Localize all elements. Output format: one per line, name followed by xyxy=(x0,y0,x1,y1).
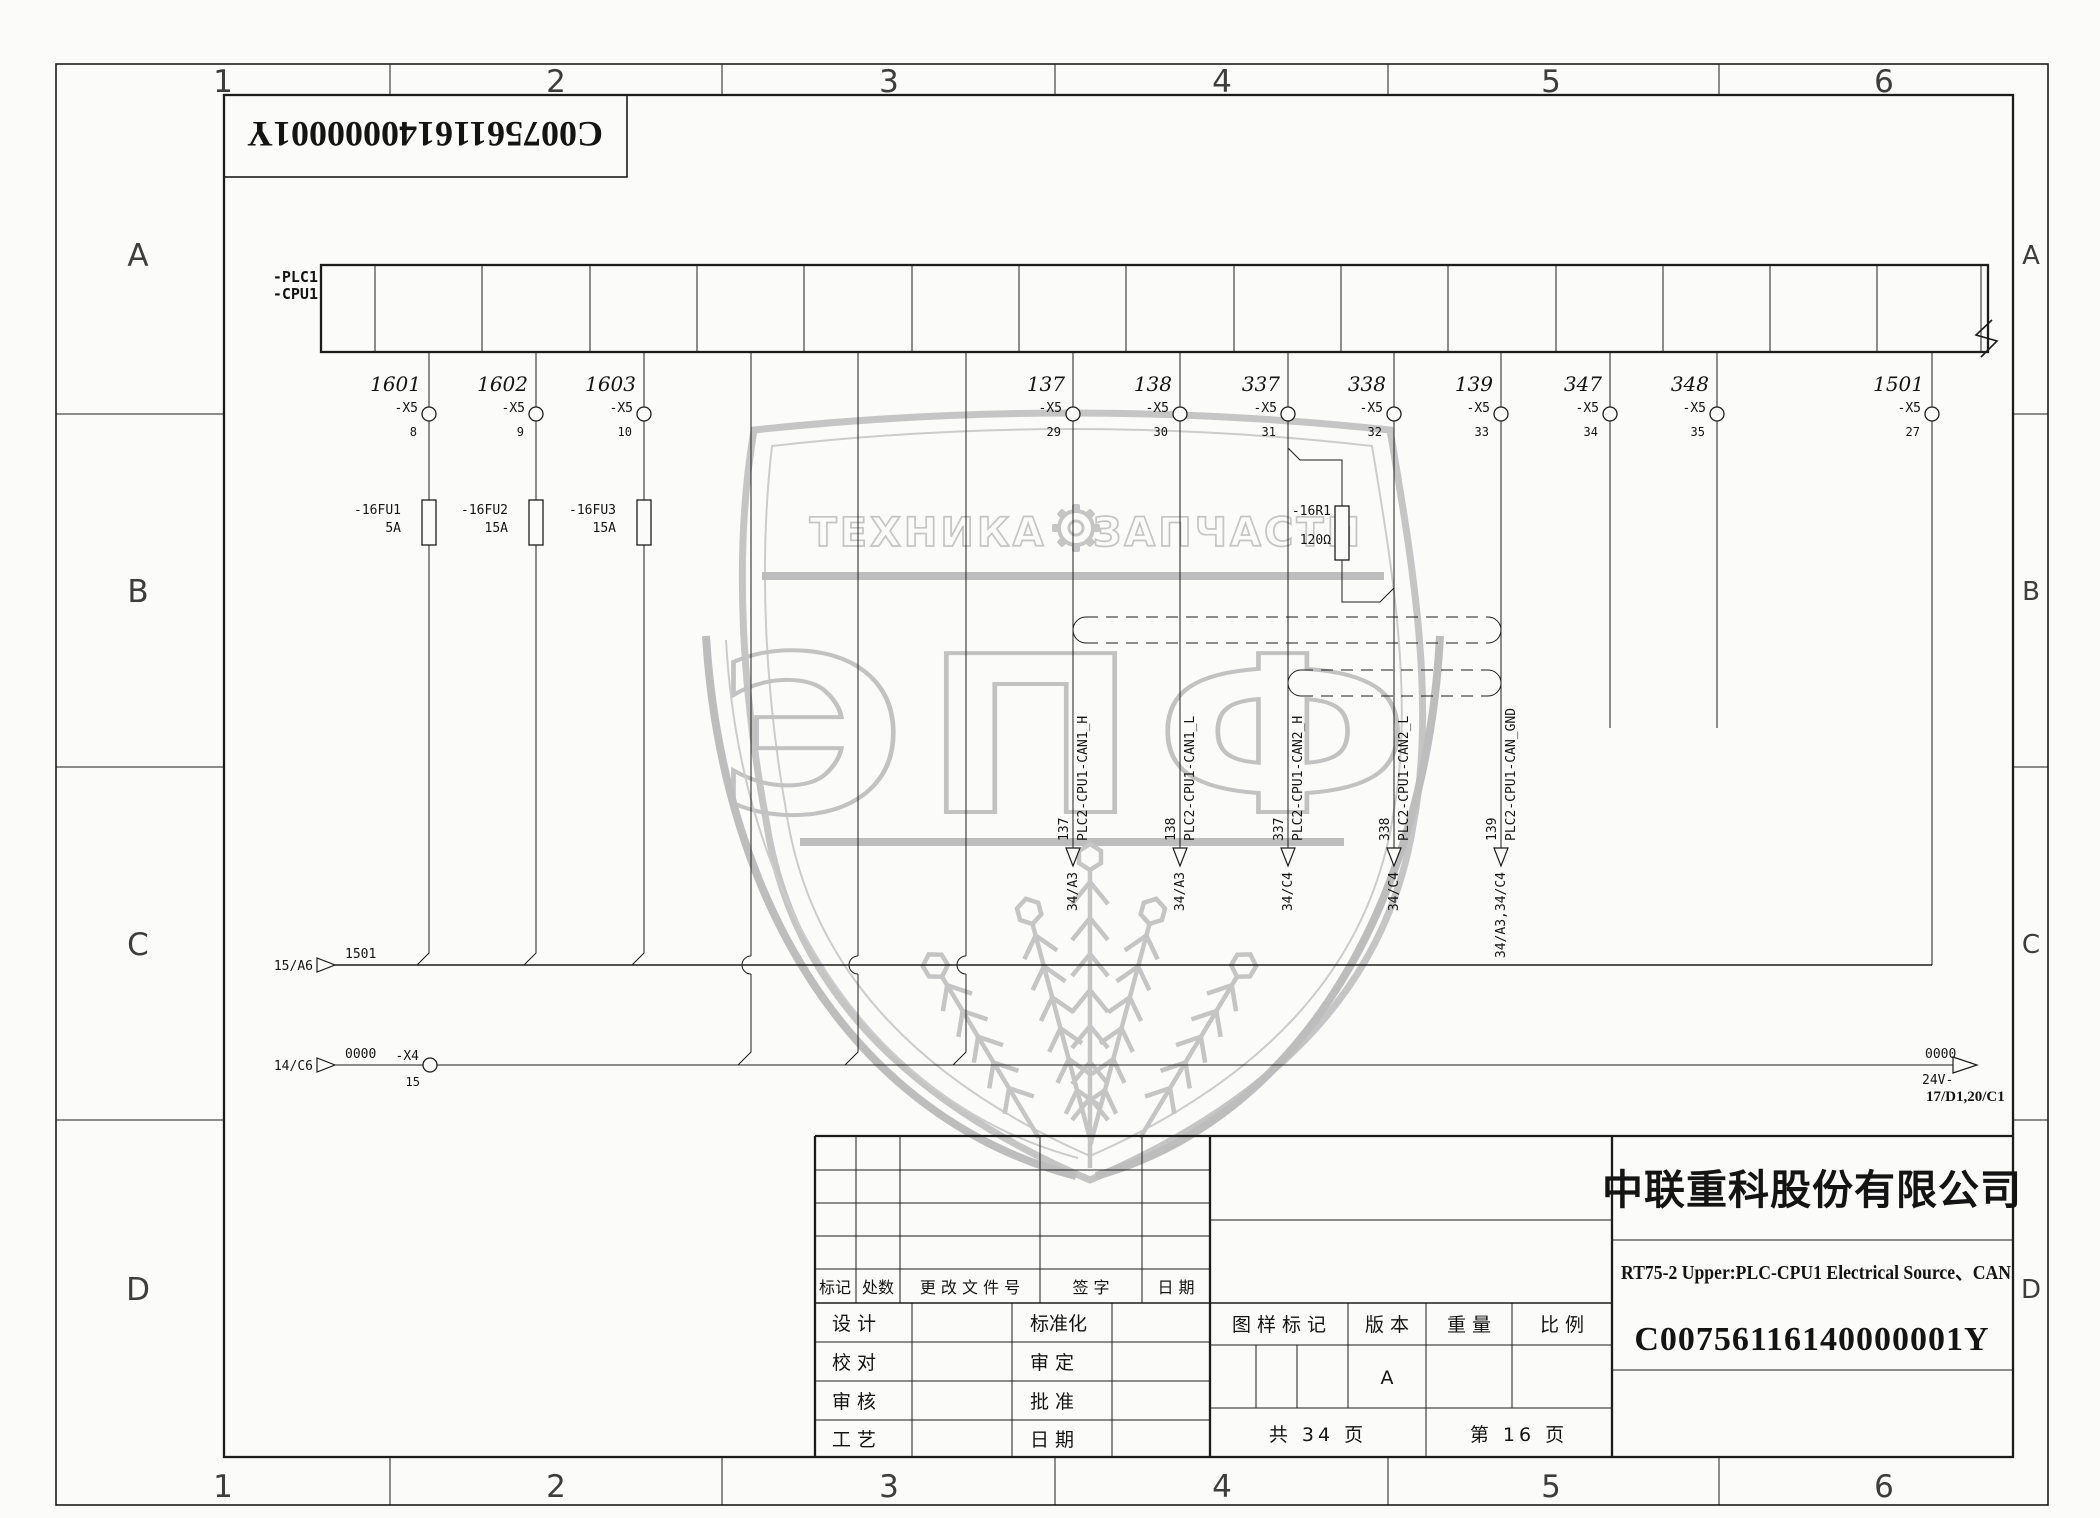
fuse-rating: 15A xyxy=(485,521,509,536)
rev-header: 处数 xyxy=(862,1278,894,1297)
sig-label: 审 核 xyxy=(832,1391,876,1413)
wire-number-vertical: 338 xyxy=(1378,818,1393,841)
row-label: A xyxy=(127,238,148,274)
revision-header-row: 标记 处数 更 改 文 件 号 签 字 日 期 xyxy=(819,1278,1195,1297)
wire-number: 137 xyxy=(1027,372,1065,396)
source-arrow-icon xyxy=(317,958,335,972)
fuse-rating: 5A xyxy=(385,521,401,536)
connector-ref: -X5 xyxy=(1683,401,1706,416)
row-label: C xyxy=(127,927,149,963)
col-label: 2 xyxy=(546,1469,566,1505)
stamp-scale-label: 比 例 xyxy=(1540,1314,1584,1336)
rev-header: 更 改 文 件 号 xyxy=(920,1278,1020,1297)
arrow-down-icon xyxy=(1494,848,1508,866)
connector-ref: -X5 xyxy=(1576,401,1599,416)
signature-labels: 设 计 校 对 审 核 工 艺 标准化 审 定 批 准 日 期 xyxy=(832,1313,1087,1451)
plc-block: -PLC1 -CPU1 xyxy=(273,265,1997,357)
pin-number: 32 xyxy=(1368,425,1382,439)
stamp-version-value: A xyxy=(1381,1367,1394,1389)
pages-total: 共 34 页 xyxy=(1269,1424,1367,1446)
wire-number: 337 xyxy=(1242,372,1280,396)
row-label: D xyxy=(2021,1275,2041,1305)
terminal-348: 348 -X5 35 xyxy=(1671,352,1724,728)
pin-number: 30 xyxy=(1154,425,1168,439)
rev-header: 标记 xyxy=(819,1278,851,1297)
cross-reference: 34/A3,34/C4 xyxy=(1494,872,1509,958)
bus-0000: 14/C6 0000 -X4 15 0000 24V- 17/D1,20/C1 xyxy=(274,1047,2005,1105)
bus-wire-number: 0000 xyxy=(1925,1047,1956,1062)
cross-reference: 17/D1,20/C1 xyxy=(1926,1089,2005,1105)
fuse-rating: 15A xyxy=(593,521,617,536)
fuse-name: -16FU3 xyxy=(569,503,616,518)
company-name: 中联重科股份有限公司 xyxy=(1602,1166,2022,1214)
drawing-number: C00756116140000001Y xyxy=(1634,1321,1989,1358)
sig-label: 批 准 xyxy=(1030,1391,1074,1413)
fuse-16FU2: -16FU2 15A xyxy=(461,500,543,545)
signal-name: PLC2-CPU1-CAN2_L xyxy=(1397,716,1412,841)
connector-ref: -X5 xyxy=(1467,401,1490,416)
sig-label: 审 定 xyxy=(1030,1352,1074,1374)
wire-number: 1501 xyxy=(1873,372,1924,396)
fuse-16FU3: -16FU3 15A xyxy=(569,500,651,545)
col-label: 5 xyxy=(1541,64,1561,100)
wire-number: 338 xyxy=(1348,372,1386,396)
terminal-x4-pin: 15 xyxy=(406,1075,420,1089)
source-reference: 15/A6 xyxy=(274,959,313,974)
col-label: 5 xyxy=(1541,1469,1561,1505)
pin-number: 29 xyxy=(1047,425,1061,439)
pin-number: 31 xyxy=(1262,425,1276,439)
row-label: A xyxy=(2022,241,2040,271)
signal-name: PLC2-CPU1-CAN1_L xyxy=(1183,716,1198,841)
doc-number-box: C00756116140000001Y xyxy=(224,95,627,177)
pin-number: 33 xyxy=(1475,425,1489,439)
gear-icon xyxy=(1052,504,1100,552)
title-block: 标记 处数 更 改 文 件 号 签 字 日 期 设 计 校 对 审 核 工 艺 … xyxy=(815,1136,2022,1457)
row-label: C xyxy=(2022,930,2040,960)
sig-label: 标准化 xyxy=(1030,1313,1087,1335)
grid-column-labels-bottom: 1 2 3 4 5 6 xyxy=(213,1469,1894,1505)
pin-number: 35 xyxy=(1691,425,1705,439)
schematic-canvas: ТЕХНИКА ЗАПЧАСТИ ЭПФ xyxy=(0,0,2100,1518)
terminal-1501: 1501 -X5 27 xyxy=(1873,352,1939,965)
connector-ref: -X5 xyxy=(1039,401,1062,416)
col-label: 1 xyxy=(213,1469,233,1505)
terminal-1601: 1601 -X5 8 xyxy=(370,352,436,965)
signal-name: PLC2-CPU1-CAN_GND xyxy=(1504,708,1519,841)
signal-name: PLC2-CPU1-CAN2_H xyxy=(1291,716,1306,841)
stamp-headers: 图 样 标 记 版 本 重 量 比 例 A xyxy=(1232,1314,1584,1389)
sig-label: 工 艺 xyxy=(832,1429,876,1451)
pages-current: 第 16 页 xyxy=(1470,1424,1568,1446)
cross-reference: 34/A3 xyxy=(1066,872,1081,911)
pin-number: 27 xyxy=(1906,425,1920,439)
bus-wire-number: 1501 xyxy=(345,947,376,962)
signal-name: PLC2-CPU1-CAN1_H xyxy=(1076,716,1091,841)
row-label: B xyxy=(127,574,148,610)
col-label: 4 xyxy=(1212,64,1232,100)
connector-ref: -X5 xyxy=(610,401,633,416)
col-label: 4 xyxy=(1212,1469,1232,1505)
bus-0000-destination: 0000 24V- 17/D1,20/C1 xyxy=(1922,1047,2005,1105)
connector-ref: -X5 xyxy=(1360,401,1383,416)
pin-number: 9 xyxy=(517,425,524,439)
source-reference: 14/C6 xyxy=(274,1059,313,1074)
cross-reference: 34/C4 xyxy=(1281,872,1296,911)
stamp-version-label: 版 本 xyxy=(1365,1314,1409,1336)
col-label: 3 xyxy=(879,64,899,100)
connector-ref: -X5 xyxy=(395,401,418,416)
sig-label: 设 计 xyxy=(832,1313,876,1335)
wire-number: 138 xyxy=(1134,372,1172,396)
connector-ref: -X5 xyxy=(502,401,525,416)
terminal-139: 139 -X5 33 139 PLC2-CPU1-CAN_GND 34/A3,3… xyxy=(1455,352,1519,958)
destination-arrow-icon xyxy=(1953,1057,1977,1073)
pin-number: 8 xyxy=(410,425,417,439)
cross-reference: 34/A3 xyxy=(1173,872,1188,911)
polarity-label: 24V- xyxy=(1922,1073,1953,1088)
wire-number: 1602 xyxy=(477,372,528,396)
doc-number-rotated: C00756116140000001Y xyxy=(247,114,603,154)
wire-number-vertical: 138 xyxy=(1164,818,1179,841)
connector-ref: -X5 xyxy=(1898,401,1921,416)
row-label: B xyxy=(2022,577,2040,607)
wire-number-vertical: 137 xyxy=(1057,818,1072,841)
terminal-347: 347 -X5 34 xyxy=(1564,352,1617,728)
wire-number: 1603 xyxy=(585,372,636,396)
wire-number: 139 xyxy=(1455,372,1493,396)
grid-row-labels-right: A B C D xyxy=(2021,241,2041,1305)
watermark-big-letters: ЭПФ xyxy=(717,611,1427,864)
fuse-name: -16FU2 xyxy=(461,503,508,518)
fuse-name: -16FU1 xyxy=(354,503,401,518)
resistor-name: -16R1 xyxy=(1292,504,1331,519)
col-label: 6 xyxy=(1874,64,1894,100)
wire-number: 348 xyxy=(1671,372,1709,396)
col-label: 6 xyxy=(1874,1469,1894,1505)
col-label: 3 xyxy=(879,1469,899,1505)
connector-ref: -X5 xyxy=(1254,401,1277,416)
source-arrow-icon xyxy=(317,1058,335,1072)
bus-wire-number: 0000 xyxy=(345,1047,376,1062)
row-label: D xyxy=(126,1272,150,1308)
connector-ref: -X5 xyxy=(1146,401,1169,416)
wire-number: 1601 xyxy=(370,372,421,396)
sig-label: 校 对 xyxy=(832,1352,876,1374)
wire-number: 347 xyxy=(1564,372,1602,396)
rev-header: 签 字 xyxy=(1072,1278,1109,1297)
wire-number-vertical: 139 xyxy=(1485,818,1500,841)
grid-row-labels-left: A B C D xyxy=(126,238,150,1308)
stamp-weight-label: 重 量 xyxy=(1447,1314,1491,1336)
plc-ref-line2: -CPU1 xyxy=(273,285,318,303)
cross-reference: 34/C4 xyxy=(1387,872,1402,911)
sig-label: 日 期 xyxy=(1030,1429,1074,1451)
fuse-16FU1: -16FU1 5A xyxy=(354,500,436,545)
page-counts: 共 34 页 第 16 页 xyxy=(1269,1424,1568,1446)
pin-number: 34 xyxy=(1584,425,1598,439)
schematic-sheet: ТЕХНИКА ЗАПЧАСТИ ЭПФ xyxy=(0,0,2100,1518)
terminal-1602: 1602 -X5 9 xyxy=(477,352,543,965)
terminal-x4-ref: -X4 xyxy=(396,1049,420,1064)
drawing-title: RT75-2 Upper:PLC-CPU1 Electrical Source、… xyxy=(1621,1262,2011,1284)
plc-ref-line1: -PLC1 xyxy=(273,268,318,286)
resistor-value: 120Ω xyxy=(1300,533,1331,548)
stamp-mark-label: 图 样 标 记 xyxy=(1232,1314,1326,1336)
terminal-1603: 1603 -X5 10 xyxy=(585,352,651,965)
watermark-word1: ТЕХНИКА xyxy=(809,510,1046,556)
wire-number-vertical: 337 xyxy=(1272,818,1287,841)
pin-number: 10 xyxy=(618,425,632,439)
rev-header: 日 期 xyxy=(1157,1278,1194,1297)
